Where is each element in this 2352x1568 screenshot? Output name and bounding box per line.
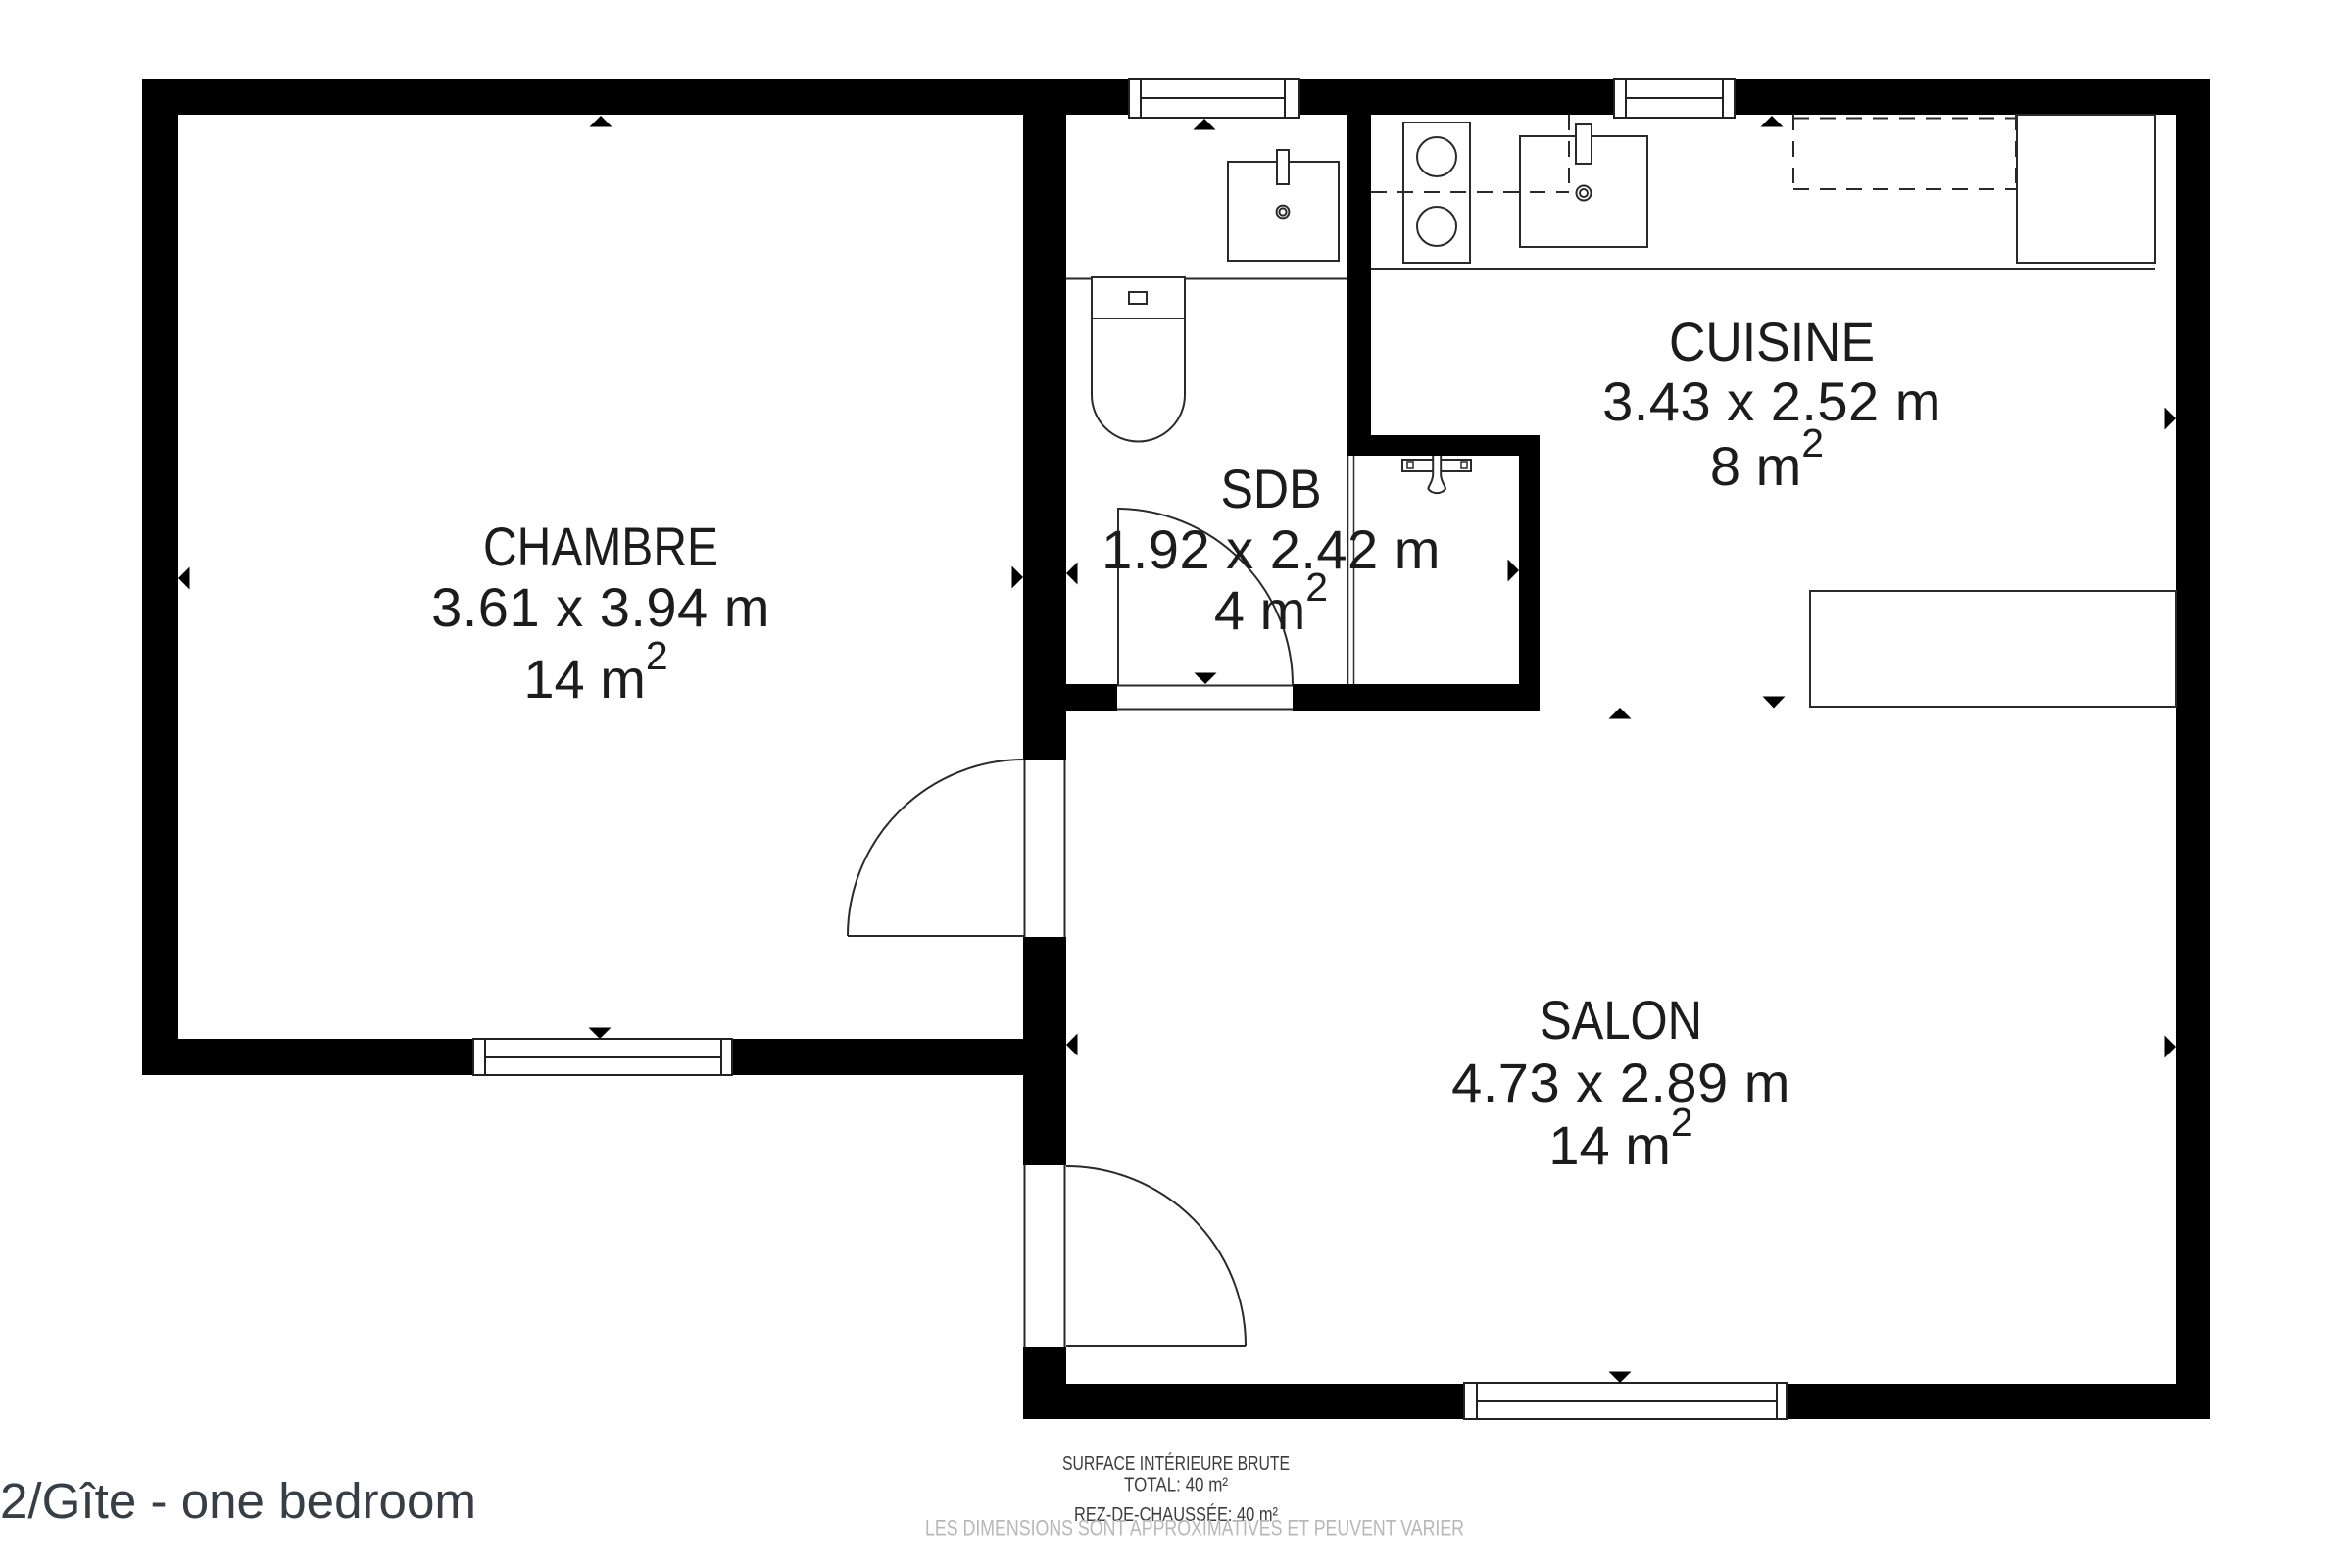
svg-text:3.43 x 2.52 m: 3.43 x 2.52 m xyxy=(1602,370,1941,432)
svg-text:3.61 x 3.94 m: 3.61 x 3.94 m xyxy=(431,576,770,638)
svg-text:SURFACE INTÉRIEURE BRUTE: SURFACE INTÉRIEURE BRUTE xyxy=(1062,1452,1290,1475)
svg-text:CHAMBRE: CHAMBRE xyxy=(483,515,718,577)
svg-text:4.73 x 2.89 m: 4.73 x 2.89 m xyxy=(1451,1052,1790,1113)
svg-text:TOTAL: 40 m²: TOTAL: 40 m² xyxy=(1124,1475,1228,1496)
svg-text:1.92 x 2.42 m: 1.92 x 2.42 m xyxy=(1102,518,1441,580)
svg-text:2/Gîte - one bedroom: 2/Gîte - one bedroom xyxy=(0,1473,476,1529)
svg-text:LES DIMENSIONS SONT APPROXIMAT: LES DIMENSIONS SONT APPROXIMATIVES ET PE… xyxy=(925,1516,1464,1541)
svg-text:CUISINE: CUISINE xyxy=(1669,311,1875,372)
svg-text:SALON: SALON xyxy=(1540,989,1702,1051)
svg-text:SDB: SDB xyxy=(1221,458,1322,519)
